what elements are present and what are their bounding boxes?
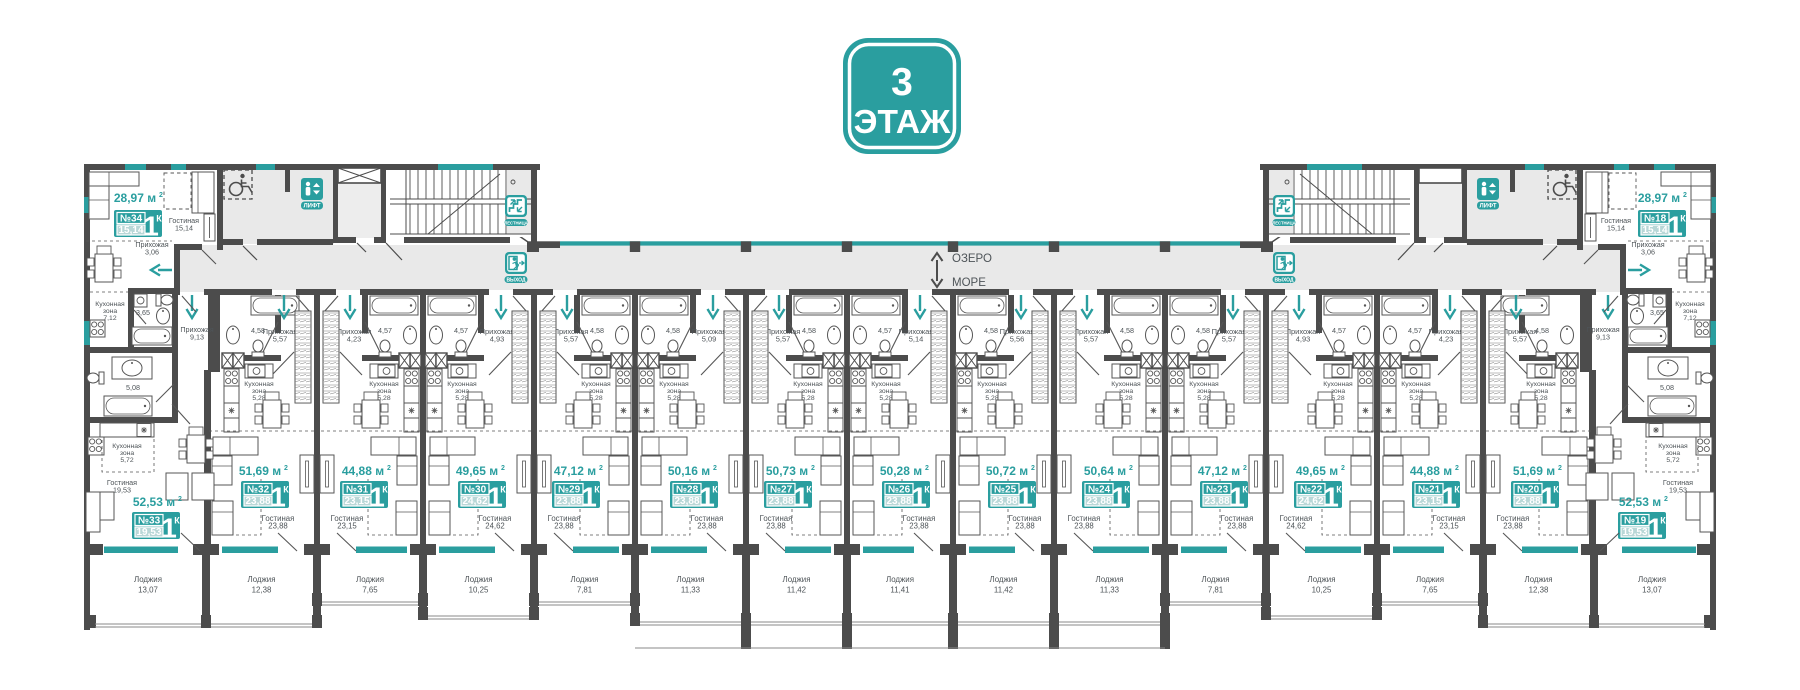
svg-text:5,57: 5,57 <box>1513 335 1528 344</box>
svg-text:К: К <box>283 485 289 495</box>
svg-text:Лоджия: Лоджия <box>571 575 599 584</box>
svg-text:Лоджия: Лоджия <box>1096 575 1124 584</box>
svg-text:19,53: 19,53 <box>1669 486 1687 495</box>
svg-text:К: К <box>1242 485 1248 495</box>
svg-text:К: К <box>500 485 506 495</box>
svg-text:№32: №32 <box>247 484 270 495</box>
svg-text:4,23: 4,23 <box>1439 335 1454 344</box>
svg-text:7,81: 7,81 <box>577 586 592 595</box>
svg-text:Кухонная: Кухонная <box>1675 301 1705 308</box>
svg-text:5,14: 5,14 <box>909 335 924 344</box>
svg-text:Лоджия: Лоджия <box>1202 575 1230 584</box>
svg-text:Кухонная: Кухонная <box>793 381 823 388</box>
svg-text:11,42: 11,42 <box>787 586 806 595</box>
svg-text:3,06: 3,06 <box>1641 248 1655 257</box>
svg-text:4,58: 4,58 <box>1120 326 1134 335</box>
svg-text:49,65 м: 49,65 м <box>1296 464 1338 478</box>
svg-text:50,16 м: 50,16 м <box>668 464 710 478</box>
svg-text:23,88: 23,88 <box>1204 496 1229 507</box>
svg-text:2: 2 <box>501 465 505 472</box>
svg-text:13,07: 13,07 <box>138 586 158 595</box>
svg-text:5,57: 5,57 <box>1084 335 1099 344</box>
svg-text:2: 2 <box>1243 465 1247 472</box>
svg-text:15,14: 15,14 <box>118 225 143 236</box>
svg-text:11,33: 11,33 <box>1100 586 1120 595</box>
svg-text:№20: №20 <box>1517 484 1540 495</box>
svg-text:2: 2 <box>159 192 163 199</box>
svg-text:5,57: 5,57 <box>273 335 288 344</box>
svg-text:Лоджия: Лоджия <box>356 575 384 584</box>
svg-text:Лоджия: Лоджия <box>990 575 1018 584</box>
svg-text:24,62: 24,62 <box>1286 522 1306 531</box>
svg-text:10,25: 10,25 <box>469 586 489 595</box>
svg-text:24,62: 24,62 <box>485 522 505 531</box>
svg-text:2: 2 <box>599 465 603 472</box>
svg-text:К: К <box>1553 485 1559 495</box>
svg-text:4,58: 4,58 <box>802 326 816 335</box>
svg-text:Кухонная: Кухонная <box>447 381 477 388</box>
svg-text:Лоджия: Лоджия <box>248 575 276 584</box>
svg-text:№25: №25 <box>994 484 1017 495</box>
svg-text:зона: зона <box>879 388 894 395</box>
svg-text:Лоджия: Лоджия <box>886 575 914 584</box>
svg-text:Кухонная: Кухонная <box>1111 381 1141 388</box>
svg-text:К: К <box>1336 485 1342 495</box>
svg-text:зона: зона <box>1331 388 1346 395</box>
svg-text:23,15: 23,15 <box>1416 496 1441 507</box>
svg-text:44,88 м: 44,88 м <box>1410 464 1452 478</box>
svg-text:Кухонная: Кухонная <box>244 381 274 388</box>
svg-text:5,09: 5,09 <box>702 335 717 344</box>
svg-text:2: 2 <box>178 496 182 503</box>
svg-text:4,58: 4,58 <box>666 326 680 335</box>
svg-text:50,72 м: 50,72 м <box>986 464 1028 478</box>
svg-text:К: К <box>174 516 180 526</box>
svg-text:12,38: 12,38 <box>252 586 272 595</box>
svg-text:К: К <box>1454 485 1460 495</box>
svg-text:№27: №27 <box>770 484 793 495</box>
svg-text:15,14: 15,14 <box>1607 224 1625 233</box>
svg-text:19,53: 19,53 <box>113 486 131 495</box>
svg-text:№22: №22 <box>1300 484 1323 495</box>
svg-text:47,12 м: 47,12 м <box>1198 464 1240 478</box>
svg-text:15,14: 15,14 <box>175 224 193 233</box>
svg-text:23,88: 23,88 <box>245 496 270 507</box>
svg-text:Лоджия: Лоджия <box>1525 575 1553 584</box>
svg-text:11,41: 11,41 <box>890 586 909 595</box>
svg-text:зона: зона <box>1534 388 1549 395</box>
svg-text:К: К <box>1124 485 1130 495</box>
svg-text:Лоджия: Лоджия <box>1308 575 1336 584</box>
svg-text:№26: №26 <box>888 484 911 495</box>
svg-text:19,53: 19,53 <box>136 527 161 538</box>
svg-text:2: 2 <box>925 465 929 472</box>
svg-text:Кухонная: Кухонная <box>1323 381 1353 388</box>
svg-text:ЛЕСТНИЦА: ЛЕСТНИЦА <box>1272 220 1295 225</box>
svg-text:зона: зона <box>1666 450 1681 457</box>
svg-text:К: К <box>382 485 388 495</box>
svg-text:5,08: 5,08 <box>126 383 140 392</box>
svg-text:зона: зона <box>377 388 392 395</box>
svg-text:ЭТАЖ: ЭТАЖ <box>854 104 951 141</box>
svg-text:№21: №21 <box>1418 484 1441 495</box>
svg-text:15,14: 15,14 <box>1642 225 1667 236</box>
svg-text:зона: зона <box>455 388 470 395</box>
svg-text:5,72: 5,72 <box>1666 457 1679 464</box>
svg-text:К: К <box>924 485 930 495</box>
svg-text:7,65: 7,65 <box>1422 586 1438 595</box>
svg-text:7,81: 7,81 <box>1208 586 1223 595</box>
svg-text:К: К <box>1680 214 1686 224</box>
svg-text:2: 2 <box>713 465 717 472</box>
svg-text:23,88: 23,88 <box>886 496 911 507</box>
svg-text:зона: зона <box>667 388 682 395</box>
svg-text:19,53: 19,53 <box>1622 527 1647 538</box>
svg-text:Лоджия: Лоджия <box>783 575 811 584</box>
svg-text:Кухонная: Кухонная <box>1189 381 1219 388</box>
svg-text:№19: №19 <box>1624 515 1647 526</box>
svg-text:23,88: 23,88 <box>766 522 786 531</box>
svg-text:4,58: 4,58 <box>984 326 998 335</box>
svg-text:№24: №24 <box>1088 484 1111 495</box>
svg-text:ВЫХОД: ВЫХОД <box>1274 278 1294 284</box>
svg-text:ЛИФТ: ЛИФТ <box>303 204 320 210</box>
svg-text:зона: зона <box>589 388 604 395</box>
svg-text:Кухонная: Кухонная <box>1401 381 1431 388</box>
svg-text:3,65: 3,65 <box>1650 308 1664 317</box>
svg-text:23,15: 23,15 <box>344 496 369 507</box>
svg-text:зона: зона <box>1119 388 1134 395</box>
svg-text:Кухонная: Кухонная <box>95 301 125 308</box>
svg-text:К: К <box>594 485 600 495</box>
svg-text:№31: №31 <box>346 484 369 495</box>
svg-text:13,07: 13,07 <box>1642 586 1662 595</box>
svg-text:23,88: 23,88 <box>674 496 699 507</box>
svg-text:ЛЕСТНИЦА: ЛЕСТНИЦА <box>504 220 527 225</box>
svg-text:Кухонная: Кухонная <box>112 443 142 450</box>
svg-text:28,97 м: 28,97 м <box>1638 191 1680 205</box>
svg-text:11,33: 11,33 <box>681 586 701 595</box>
svg-text:4,93: 4,93 <box>490 335 505 344</box>
svg-text:2: 2 <box>1664 496 1668 503</box>
svg-text:зона: зона <box>1197 388 1212 395</box>
svg-text:12,38: 12,38 <box>1529 586 1549 595</box>
svg-text:50,28 м: 50,28 м <box>880 464 922 478</box>
svg-text:3: 3 <box>891 61 913 104</box>
svg-text:Кухонная: Кухонная <box>977 381 1007 388</box>
svg-text:4,23: 4,23 <box>347 335 362 344</box>
svg-text:23,88: 23,88 <box>554 522 574 531</box>
svg-text:МОРЕ: МОРЕ <box>952 277 986 289</box>
svg-text:4,58: 4,58 <box>590 326 604 335</box>
svg-text:2: 2 <box>1558 465 1562 472</box>
svg-text:23,88: 23,88 <box>992 496 1017 507</box>
svg-text:Кухонная: Кухонная <box>369 381 399 388</box>
svg-text:К: К <box>1660 516 1666 526</box>
svg-text:52,53 м: 52,53 м <box>1619 495 1661 509</box>
svg-text:9,13: 9,13 <box>190 333 204 342</box>
svg-text:Лоджия: Лоджия <box>1416 575 1444 584</box>
svg-text:5,56: 5,56 <box>1010 335 1025 344</box>
svg-text:5,57: 5,57 <box>776 335 791 344</box>
svg-text:зона: зона <box>103 308 118 315</box>
svg-text:52,53 м: 52,53 м <box>133 495 175 509</box>
svg-text:24,62: 24,62 <box>1298 496 1323 507</box>
svg-text:3,65: 3,65 <box>136 308 150 317</box>
svg-text:23,88: 23,88 <box>1074 522 1094 531</box>
svg-text:2: 2 <box>811 465 815 472</box>
svg-text:К: К <box>806 485 812 495</box>
svg-text:23,88: 23,88 <box>909 522 929 531</box>
svg-text:зона: зона <box>120 450 135 457</box>
svg-text:К: К <box>1030 485 1036 495</box>
svg-text:23,15: 23,15 <box>337 522 357 531</box>
svg-text:2: 2 <box>284 465 288 472</box>
svg-text:50,64 м: 50,64 м <box>1084 464 1126 478</box>
svg-text:К: К <box>156 214 162 224</box>
svg-text:5,08: 5,08 <box>1660 383 1674 392</box>
svg-text:4,57: 4,57 <box>1408 326 1422 335</box>
svg-text:4,93: 4,93 <box>1296 335 1311 344</box>
svg-text:2: 2 <box>1031 465 1035 472</box>
svg-text:зона: зона <box>1409 388 1424 395</box>
svg-text:23,15: 23,15 <box>1439 522 1459 531</box>
svg-text:ВЫХОД: ВЫХОД <box>506 278 526 284</box>
svg-text:2: 2 <box>387 465 391 472</box>
svg-text:24,62: 24,62 <box>462 496 487 507</box>
svg-text:2: 2 <box>1455 465 1459 472</box>
svg-text:2: 2 <box>1129 465 1133 472</box>
svg-text:51,69 м: 51,69 м <box>239 464 281 478</box>
svg-text:4,57: 4,57 <box>878 326 892 335</box>
svg-text:зона: зона <box>1683 308 1698 315</box>
svg-text:7,65: 7,65 <box>362 586 378 595</box>
svg-text:23,88: 23,88 <box>768 496 793 507</box>
svg-text:23,88: 23,88 <box>1086 496 1111 507</box>
svg-text:4,57: 4,57 <box>454 326 468 335</box>
svg-text:4,57: 4,57 <box>1332 326 1346 335</box>
svg-text:№23: №23 <box>1206 484 1229 495</box>
svg-text:Кухонная: Кухонная <box>659 381 689 388</box>
svg-text:49,65 м: 49,65 м <box>456 464 498 478</box>
svg-text:зона: зона <box>985 388 1000 395</box>
svg-text:Лоджия: Лоджия <box>677 575 705 584</box>
svg-text:23,88: 23,88 <box>556 496 581 507</box>
svg-text:23,88: 23,88 <box>268 522 288 531</box>
svg-text:К: К <box>712 485 718 495</box>
svg-text:№18: №18 <box>1644 213 1667 224</box>
svg-text:2: 2 <box>1683 192 1687 199</box>
svg-text:4,57: 4,57 <box>378 326 392 335</box>
svg-text:47,12 м: 47,12 м <box>554 464 596 478</box>
svg-text:5,72: 5,72 <box>120 457 133 464</box>
svg-text:зона: зона <box>252 388 267 395</box>
svg-text:№34: №34 <box>120 213 143 224</box>
svg-text:5,57: 5,57 <box>564 335 579 344</box>
svg-text:23,88: 23,88 <box>1503 522 1523 531</box>
svg-text:23,88: 23,88 <box>1515 496 1540 507</box>
svg-text:23,88: 23,88 <box>1227 522 1247 531</box>
svg-text:44,88 м: 44,88 м <box>342 464 384 478</box>
svg-text:№29: №29 <box>558 484 581 495</box>
svg-text:Лоджия: Лоджия <box>1638 575 1666 584</box>
svg-text:11,42: 11,42 <box>994 586 1013 595</box>
svg-text:10,25: 10,25 <box>1312 586 1332 595</box>
svg-text:ЛИФТ: ЛИФТ <box>1479 204 1496 210</box>
svg-text:51,69 м: 51,69 м <box>1513 464 1555 478</box>
svg-text:№33: №33 <box>138 515 161 526</box>
svg-text:ОЗЕРО: ОЗЕРО <box>952 253 992 265</box>
svg-text:Лоджия: Лоджия <box>465 575 493 584</box>
svg-text:23,88: 23,88 <box>697 522 717 531</box>
svg-text:50,73 м: 50,73 м <box>766 464 808 478</box>
svg-text:9,13: 9,13 <box>1596 333 1610 342</box>
svg-text:2: 2 <box>1341 465 1345 472</box>
svg-text:5,57: 5,57 <box>1222 335 1237 344</box>
svg-text:3,06: 3,06 <box>145 248 159 257</box>
svg-text:№30: №30 <box>464 484 487 495</box>
svg-text:зона: зона <box>801 388 816 395</box>
svg-text:28,97 м: 28,97 м <box>114 191 156 205</box>
svg-text:Кухонная: Кухонная <box>581 381 611 388</box>
svg-text:Лоджия: Лоджия <box>134 575 162 584</box>
svg-text:Кухонная: Кухонная <box>871 381 901 388</box>
svg-text:23,88: 23,88 <box>1015 522 1035 531</box>
svg-text:Кухонная: Кухонная <box>1526 381 1556 388</box>
svg-text:№28: №28 <box>676 484 699 495</box>
svg-text:4,58: 4,58 <box>1196 326 1210 335</box>
svg-text:Кухонная: Кухонная <box>1658 443 1688 450</box>
